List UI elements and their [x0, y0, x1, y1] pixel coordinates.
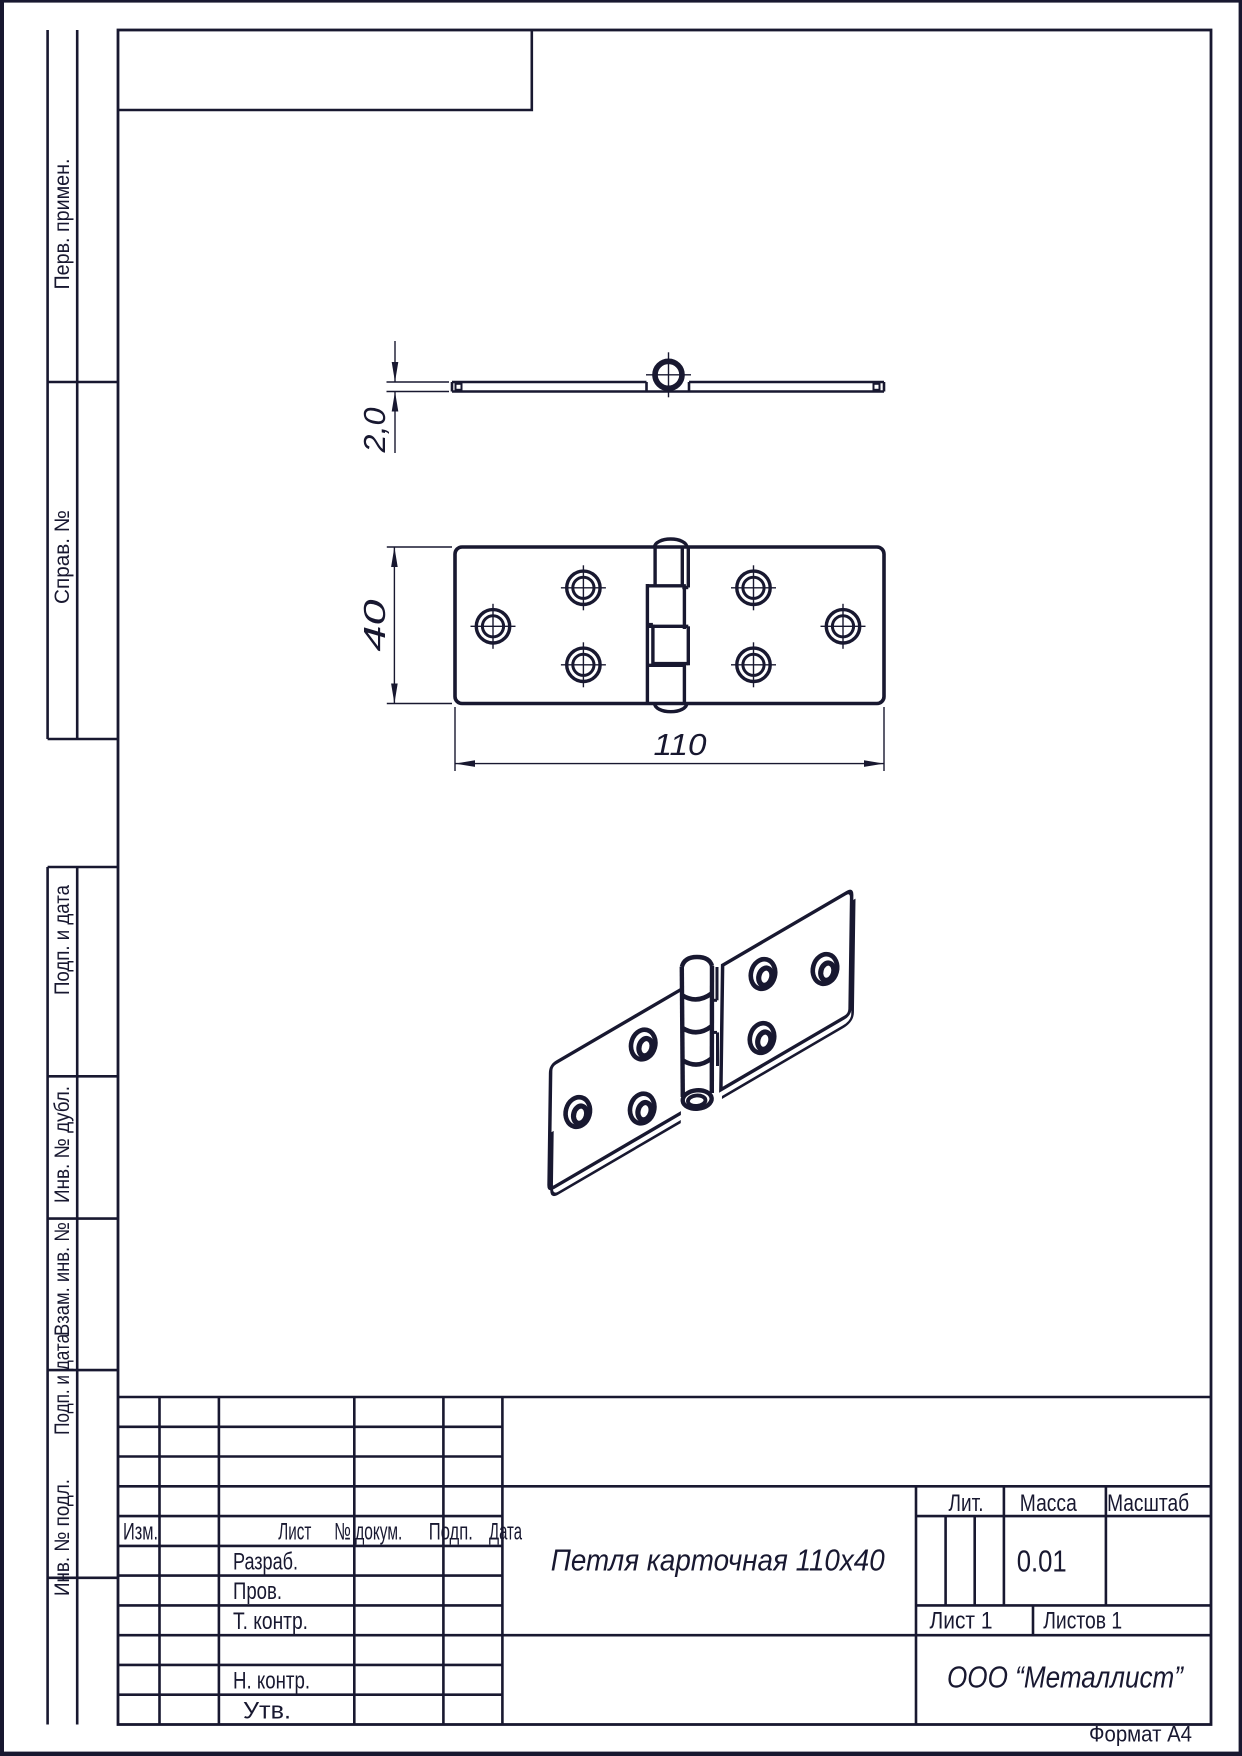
svg-text:Утв.: Утв.: [243, 1697, 291, 1724]
svg-text:Подп. и дата: Подп. и дата: [51, 1334, 74, 1435]
svg-text:Листов 1: Листов 1: [1043, 1608, 1122, 1635]
svg-text:Разраб.: Разраб.: [233, 1549, 298, 1576]
svg-text:0.01: 0.01: [1017, 1544, 1067, 1579]
svg-text:Перв. примен.: Перв. примен.: [51, 159, 74, 290]
svg-text:Н. контр.: Н. контр.: [233, 1668, 310, 1695]
svg-text:Инв. № подл.: Инв. № подл.: [51, 1479, 74, 1596]
svg-text:Пров.: Пров.: [233, 1578, 282, 1605]
svg-text:Справ. №: Справ. №: [51, 510, 74, 604]
svg-text:110: 110: [654, 727, 707, 762]
svg-text:Масса: Масса: [1020, 1490, 1078, 1517]
svg-text:Лист: Лист: [278, 1519, 311, 1546]
svg-text:Лит.: Лит.: [949, 1490, 984, 1517]
svg-text:2,0: 2,0: [357, 408, 392, 454]
svg-text:Инв. № дубл.: Инв. № дубл.: [51, 1086, 74, 1203]
svg-text:Изм.: Изм.: [123, 1519, 158, 1546]
svg-text:ООО “Металлист”: ООО “Металлист”: [947, 1660, 1184, 1695]
svg-text:№ докум.: № докум.: [334, 1519, 402, 1546]
svg-text:Т. контр.: Т. контр.: [233, 1608, 308, 1635]
svg-text:40: 40: [357, 600, 392, 652]
svg-text:Петля карточная 110x40: Петля карточная 110x40: [551, 1543, 885, 1578]
svg-text:Подп.: Подп.: [429, 1519, 473, 1546]
svg-text:Масштаб: Масштаб: [1107, 1490, 1189, 1517]
svg-text:Дата: Дата: [489, 1519, 522, 1546]
svg-text:Формат А4: Формат А4: [1089, 1722, 1192, 1747]
svg-text:Лист 1: Лист 1: [930, 1608, 993, 1635]
svg-text:Взам. инв. №: Взам. инв. №: [51, 1222, 74, 1336]
svg-text:Подп. и дата: Подп. и дата: [51, 885, 74, 995]
